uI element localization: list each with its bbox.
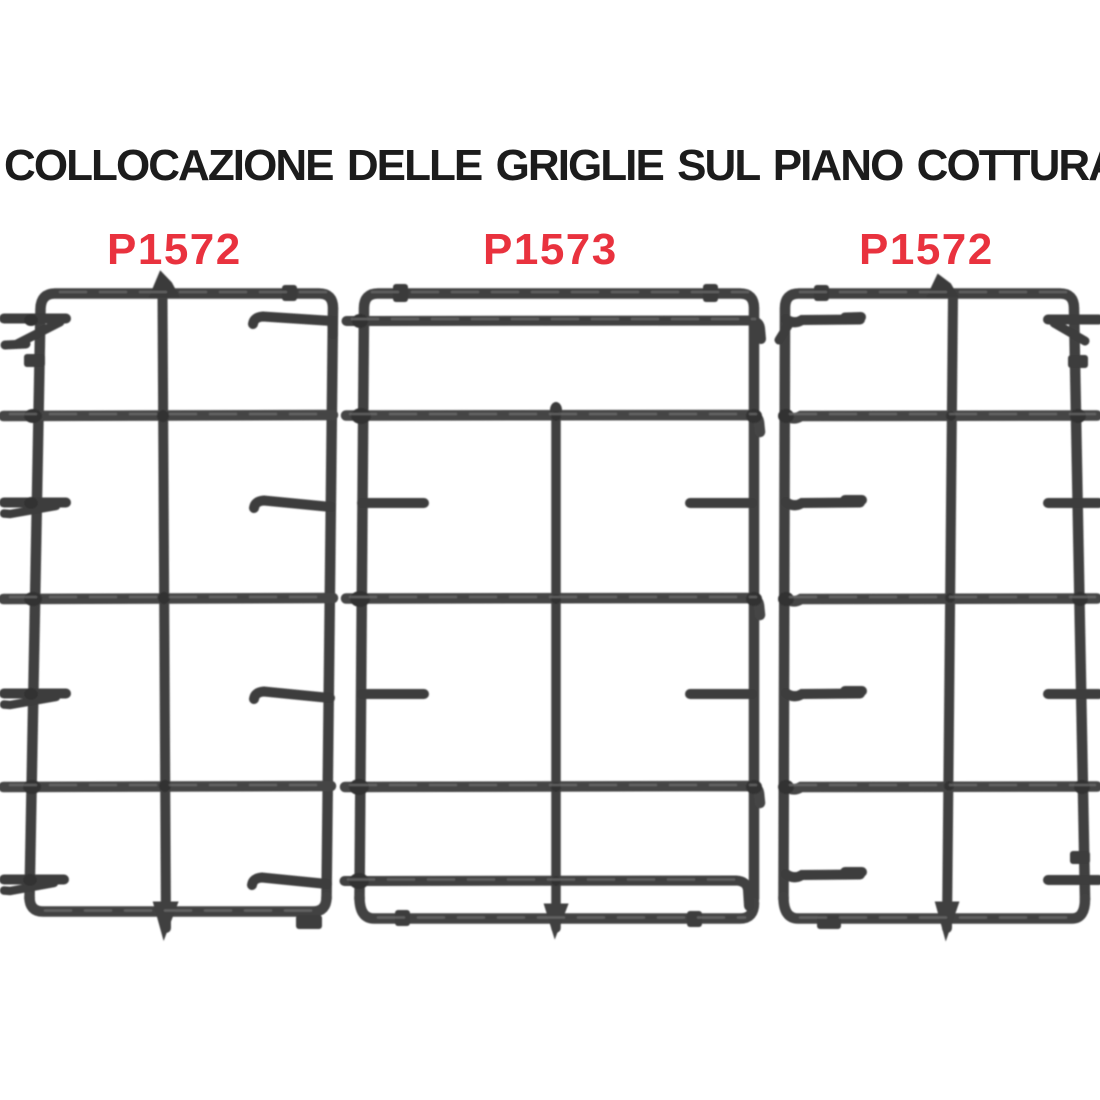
- svg-text:P1572: P1572: [107, 225, 242, 274]
- svg-text:P1572: P1572: [859, 225, 994, 274]
- svg-text:COLLOCAZIONE DELLE GRIGLIE SUL: COLLOCAZIONE DELLE GRIGLIE SUL PIANO COT…: [4, 141, 1100, 190]
- svg-text:P1573: P1573: [483, 225, 618, 274]
